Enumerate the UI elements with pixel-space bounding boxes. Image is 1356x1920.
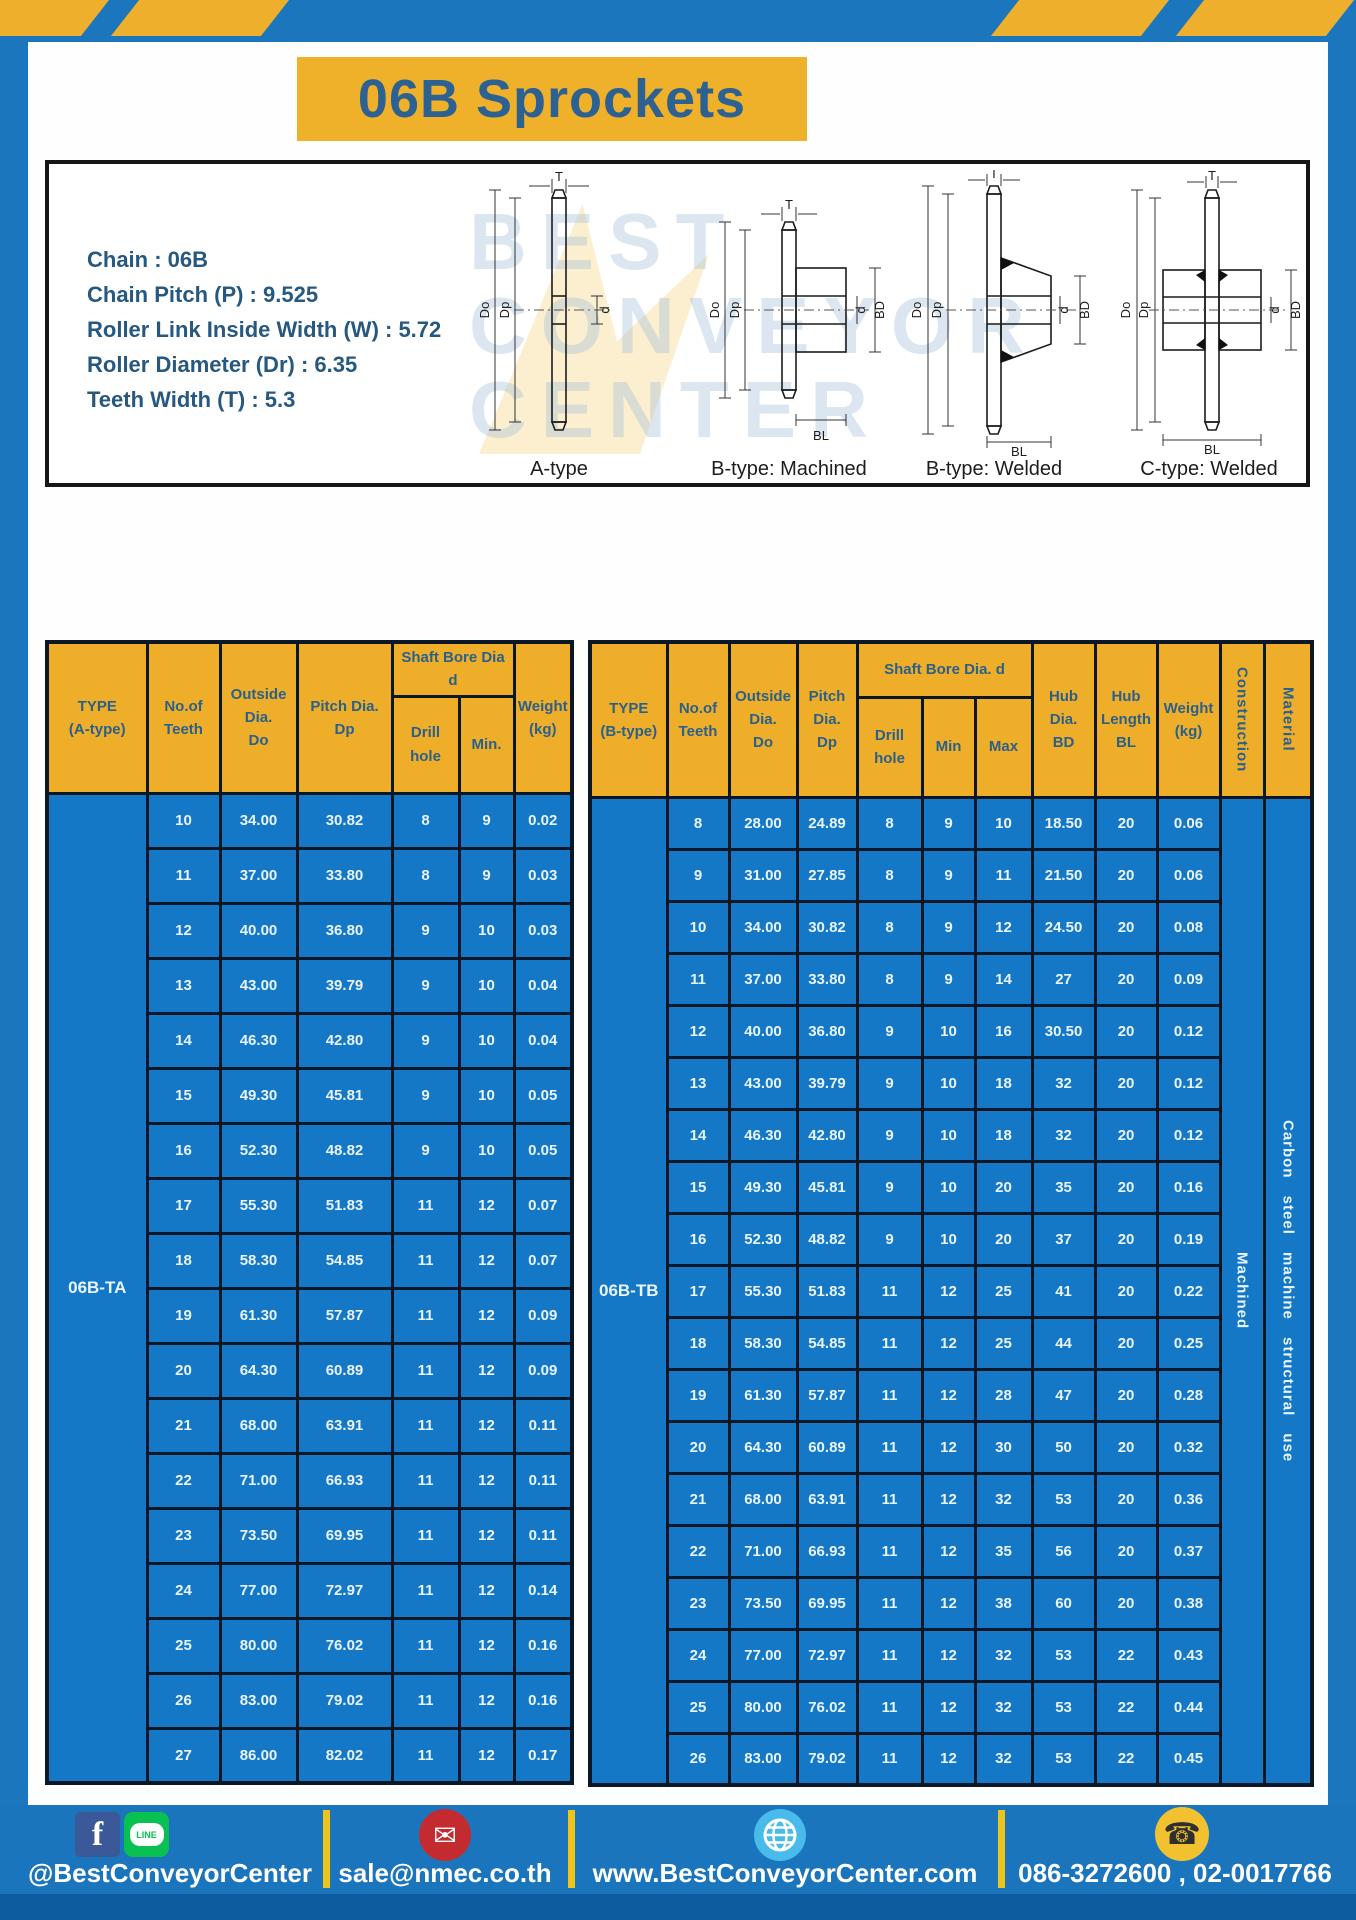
header-type: TYPE (B-type): [590, 642, 667, 797]
data-cell: 0.44: [1157, 1681, 1220, 1733]
svg-text:T: T: [785, 197, 793, 212]
data-cell: 20: [1095, 797, 1157, 849]
data-cell: 11: [392, 1618, 459, 1673]
data-cell: 13: [147, 958, 220, 1013]
data-cell: 0.38: [1157, 1577, 1220, 1629]
data-cell: 52.30: [729, 1213, 797, 1265]
header-min: Min.: [459, 696, 514, 793]
data-cell: 0.17: [514, 1728, 572, 1783]
data-cell: 68.00: [729, 1473, 797, 1525]
data-cell: 11: [857, 1733, 922, 1785]
data-cell: 48.82: [297, 1123, 392, 1178]
data-cell: 22: [147, 1453, 220, 1508]
data-cell: 28.00: [729, 797, 797, 849]
footer-website: www.BestConveyorCenter.com: [590, 1858, 980, 1889]
data-cell: 20: [667, 1421, 729, 1473]
data-cell: 11: [392, 1398, 459, 1453]
spec-line-chain: Chain : 06B: [87, 242, 441, 277]
data-cell: 17: [147, 1178, 220, 1233]
data-cell: 21: [147, 1398, 220, 1453]
data-cell: 11: [147, 848, 220, 903]
header-pitch: Pitch Dia. Dp: [797, 642, 857, 797]
data-cell: 73.50: [729, 1577, 797, 1629]
data-cell: 33.80: [297, 848, 392, 903]
figure-b-type-welded: T Do Dp d BD BL B-type: Welded: [889, 170, 1099, 482]
data-cell: 8: [857, 901, 922, 953]
data-cell: 71.00: [729, 1525, 797, 1577]
data-cell: 0.45: [1157, 1733, 1220, 1785]
data-cell: 20: [975, 1213, 1032, 1265]
data-cell: 39.79: [297, 958, 392, 1013]
svg-text:T: T: [555, 170, 563, 184]
data-cell: 49.30: [729, 1161, 797, 1213]
data-cell: 10: [975, 797, 1032, 849]
spec-line-teeth: Teeth Width (T) : 5.3: [87, 382, 441, 417]
data-cell: 0.25: [1157, 1317, 1220, 1369]
data-cell: 10: [459, 1068, 514, 1123]
data-cell: 53: [1032, 1629, 1095, 1681]
data-cell: 11: [857, 1317, 922, 1369]
footer-email: sale@nmec.co.th: [330, 1858, 560, 1889]
data-cell: 23: [667, 1577, 729, 1629]
data-cell: 47: [1032, 1369, 1095, 1421]
data-cell: 23: [147, 1508, 220, 1563]
figure-label-a-type: A-type: [530, 458, 588, 481]
data-cell: 0.07: [514, 1178, 572, 1233]
data-cell: 53: [1032, 1733, 1095, 1785]
data-cell: 76.02: [297, 1618, 392, 1673]
data-cell: 11: [857, 1629, 922, 1681]
sprocket-drawing-b-machined: T Do Dp d BD BL: [689, 170, 889, 458]
data-cell: 32: [1032, 1109, 1095, 1161]
data-cell: 0.12: [1157, 1005, 1220, 1057]
spec-table-a-type: TYPE (A-type) No.of Teeth Outside Dia. D…: [45, 640, 574, 1785]
footer-phone-numbers: 086-3272600 , 02-0017766: [1000, 1858, 1350, 1889]
svg-text:Do: Do: [1118, 302, 1133, 319]
data-cell: 13: [667, 1057, 729, 1109]
data-cell: 14: [667, 1109, 729, 1161]
data-cell: 71.00: [220, 1453, 297, 1508]
data-cell: 8: [857, 797, 922, 849]
data-cell: 10: [459, 903, 514, 958]
table-b-header: TYPE (B-type) No.of Teeth Outside Dia. D…: [590, 642, 1312, 797]
data-cell: 10: [459, 1013, 514, 1068]
data-cell: 25: [975, 1265, 1032, 1317]
data-cell: 61.30: [220, 1288, 297, 1343]
data-cell: 18: [147, 1233, 220, 1288]
diagram-panel: BEST CONVEYOR CENTER Chain : 06B Chain P…: [45, 160, 1310, 487]
data-cell: 9: [857, 1109, 922, 1161]
table-row: 1240.0036.809101630.50200.12: [590, 1005, 1312, 1057]
data-cell: 25: [147, 1618, 220, 1673]
data-cell: 51.83: [297, 1178, 392, 1233]
data-cell: 52.30: [220, 1123, 297, 1178]
data-cell: 61.30: [729, 1369, 797, 1421]
header-pitch: Pitch Dia. Dp: [297, 642, 392, 793]
svg-text:Do: Do: [909, 302, 924, 319]
data-cell: 24: [147, 1563, 220, 1618]
data-cell: 55.30: [220, 1178, 297, 1233]
svg-text:T: T: [990, 170, 998, 181]
data-cell: 16: [147, 1123, 220, 1178]
line-app-icon: LINE: [124, 1812, 169, 1857]
data-cell: 24: [667, 1629, 729, 1681]
data-cell: 64.30: [220, 1343, 297, 1398]
email-icon: ✉: [419, 1809, 471, 1861]
data-cell: 12: [922, 1369, 975, 1421]
data-cell: 20: [1095, 1213, 1157, 1265]
data-cell: 11: [857, 1473, 922, 1525]
header-hub-dia: Hub Dia. BD: [1032, 642, 1095, 797]
svg-text:BL: BL: [1011, 444, 1027, 458]
data-cell: 44: [1032, 1317, 1095, 1369]
data-cell: 8: [667, 797, 729, 849]
data-cell: 11: [857, 1525, 922, 1577]
data-cell: 10: [922, 1005, 975, 1057]
table-row: 2064.3060.8911123050200.32: [590, 1421, 1312, 1473]
data-cell: 9: [922, 901, 975, 953]
data-cell: 55.30: [729, 1265, 797, 1317]
header-construction: Construction: [1220, 642, 1264, 797]
table-row: 06B-TB828.0024.89891018.50200.06Machined…: [590, 797, 1312, 849]
header-min: Min: [922, 697, 975, 797]
title-banner: 06B Sprockets: [297, 57, 807, 141]
data-cell: 12: [459, 1178, 514, 1233]
footer-separator: [323, 1810, 330, 1888]
table-b-body: 06B-TB828.0024.89891018.50200.06Machined…: [590, 797, 1312, 1785]
svg-text:BD: BD: [1288, 301, 1303, 319]
data-cell: 34.00: [729, 901, 797, 953]
data-cell: 12: [922, 1473, 975, 1525]
data-cell: 0.09: [514, 1288, 572, 1343]
data-cell: 27: [147, 1728, 220, 1783]
data-cell: 0.16: [514, 1673, 572, 1728]
data-cell: 37: [1032, 1213, 1095, 1265]
svg-text:d: d: [1267, 306, 1282, 313]
data-cell: 9: [922, 953, 975, 1005]
data-cell: 12: [975, 901, 1032, 953]
data-cell: 0.08: [1157, 901, 1220, 953]
header-type: TYPE (A-type): [47, 642, 147, 793]
data-cell: 32: [975, 1733, 1032, 1785]
footer-social-handle: @BestConveyorCenter: [20, 1858, 320, 1889]
header-material: Material: [1264, 642, 1312, 797]
data-cell: 9: [857, 1213, 922, 1265]
data-cell: 41: [1032, 1265, 1095, 1317]
data-cell: 30.50: [1032, 1005, 1095, 1057]
data-cell: 77.00: [220, 1563, 297, 1618]
data-cell: 25: [975, 1317, 1032, 1369]
data-cell: 12: [922, 1265, 975, 1317]
footer-separator: [568, 1810, 575, 1888]
table-row: 1137.0033.80891427200.09: [590, 953, 1312, 1005]
data-cell: 36.80: [297, 903, 392, 958]
data-cell: 18: [975, 1057, 1032, 1109]
header-weight: Weight (kg): [514, 642, 572, 793]
sprocket-drawing-a-type: T Do Dp d: [459, 170, 659, 458]
data-cell: 12: [459, 1233, 514, 1288]
data-cell: 46.30: [729, 1109, 797, 1161]
spec-line-roller: Roller Diameter (Dr) : 6.35: [87, 347, 441, 382]
data-cell: 12: [459, 1508, 514, 1563]
data-cell: 39.79: [797, 1057, 857, 1109]
construction-value: Machined: [1220, 797, 1264, 1785]
data-cell: 8: [857, 953, 922, 1005]
material-value: Carbon steel machine structural use: [1264, 797, 1312, 1785]
data-cell: 20: [1095, 849, 1157, 901]
data-cell: 12: [922, 1681, 975, 1733]
decorative-stripe: [0, 0, 109, 36]
facebook-icon: f: [75, 1812, 120, 1857]
data-cell: 37.00: [220, 848, 297, 903]
table-row: 1446.3042.809101832200.12: [590, 1109, 1312, 1161]
data-cell: 82.02: [297, 1728, 392, 1783]
svg-text:Do: Do: [477, 302, 492, 319]
data-cell: 0.12: [1157, 1109, 1220, 1161]
data-cell: 20: [1095, 1577, 1157, 1629]
header-teeth: No.of Teeth: [667, 642, 729, 797]
data-cell: 38: [975, 1577, 1032, 1629]
table-row: 2271.0066.9311123556200.37: [590, 1525, 1312, 1577]
data-cell: 24.50: [1032, 901, 1095, 953]
figure-c-type-welded: T Do Dp d BD BL C-typ: [1104, 170, 1314, 482]
data-cell: 8: [392, 848, 459, 903]
sprocket-drawing-b-welded: T Do Dp d BD BL: [894, 170, 1094, 458]
data-cell: 54.85: [797, 1317, 857, 1369]
data-cell: 9: [392, 1013, 459, 1068]
data-cell: 24.89: [797, 797, 857, 849]
data-cell: 11: [857, 1369, 922, 1421]
data-cell: 20: [1095, 1525, 1157, 1577]
data-cell: 32: [975, 1629, 1032, 1681]
data-cell: 12: [147, 903, 220, 958]
table-row: 1961.3057.8711122847200.28: [590, 1369, 1312, 1421]
data-cell: 0.22: [1157, 1265, 1220, 1317]
data-cell: 57.87: [797, 1369, 857, 1421]
data-cell: 0.06: [1157, 849, 1220, 901]
data-cell: 12: [922, 1317, 975, 1369]
data-cell: 9: [857, 1057, 922, 1109]
data-cell: 0.11: [514, 1508, 572, 1563]
data-cell: 0.32: [1157, 1421, 1220, 1473]
header-outside: Outside Dia. Do: [220, 642, 297, 793]
data-cell: 34.00: [220, 793, 297, 848]
table-row: 1343.0039.799101832200.12: [590, 1057, 1312, 1109]
data-cell: 27.85: [797, 849, 857, 901]
data-cell: 60.89: [297, 1343, 392, 1398]
data-cell: 86.00: [220, 1728, 297, 1783]
decorative-stripe: [991, 0, 1169, 36]
svg-text:Dp: Dp: [1136, 302, 1151, 319]
data-cell: 11: [392, 1673, 459, 1728]
table-row: 2683.0079.0211123253220.45: [590, 1733, 1312, 1785]
data-cell: 12: [459, 1728, 514, 1783]
svg-text:BL: BL: [1204, 442, 1220, 457]
data-cell: 12: [922, 1421, 975, 1473]
header-hub-length: Hub Length BL: [1095, 642, 1157, 797]
data-cell: 11: [392, 1728, 459, 1783]
data-cell: 12: [922, 1733, 975, 1785]
facebook-letter: f: [92, 1816, 103, 1854]
figure-label-b-welded: B-type: Welded: [926, 458, 1062, 481]
type-label: 06B-TA: [47, 793, 147, 1783]
data-cell: 0.03: [514, 903, 572, 958]
data-cell: 0.04: [514, 958, 572, 1013]
data-cell: 10: [147, 793, 220, 848]
data-cell: 20: [1095, 1421, 1157, 1473]
data-cell: 18: [667, 1317, 729, 1369]
line-badge: LINE: [130, 1823, 164, 1846]
data-cell: 19: [147, 1288, 220, 1343]
data-cell: 72.97: [297, 1563, 392, 1618]
data-cell: 31.00: [729, 849, 797, 901]
spec-sheet-page: 06B Sprockets BEST CONVEYOR CENTER Chain…: [0, 0, 1356, 1920]
data-cell: 33.80: [797, 953, 857, 1005]
data-cell: 0.06: [1157, 797, 1220, 849]
data-cell: 30: [975, 1421, 1032, 1473]
header-outside: Outside Dia. Do: [729, 642, 797, 797]
data-cell: 10: [459, 958, 514, 1013]
figure-a-type: T Do Dp d A-type: [454, 170, 664, 482]
data-cell: 11: [857, 1577, 922, 1629]
data-cell: 0.05: [514, 1123, 572, 1178]
data-cell: 9: [667, 849, 729, 901]
data-cell: 0.16: [1157, 1161, 1220, 1213]
svg-text:d: d: [853, 306, 868, 313]
decorative-stripe: [1176, 0, 1354, 36]
data-cell: 51.83: [797, 1265, 857, 1317]
data-cell: 15: [667, 1161, 729, 1213]
data-cell: 20: [1095, 901, 1157, 953]
data-cell: 20: [1095, 1369, 1157, 1421]
data-cell: 12: [922, 1577, 975, 1629]
header-teeth: No.of Teeth: [147, 642, 220, 793]
data-cell: 60: [1032, 1577, 1095, 1629]
data-cell: 12: [922, 1629, 975, 1681]
table-a-header: TYPE (A-type) No.of Teeth Outside Dia. D…: [47, 642, 572, 793]
data-cell: 0.07: [514, 1233, 572, 1288]
svg-text:Dp: Dp: [497, 302, 512, 319]
data-cell: 10: [922, 1161, 975, 1213]
footer-bottom-strip: [0, 1894, 1356, 1920]
data-cell: 9: [459, 848, 514, 903]
data-cell: 43.00: [729, 1057, 797, 1109]
data-cell: 10: [922, 1057, 975, 1109]
data-cell: 18: [975, 1109, 1032, 1161]
data-cell: 20: [147, 1343, 220, 1398]
data-cell: 35: [975, 1525, 1032, 1577]
table-a-body: 06B-TA1034.0030.82890.021137.0033.80890.…: [47, 793, 572, 1783]
data-cell: 0.16: [514, 1618, 572, 1673]
table-row: 2373.5069.9511123860200.38: [590, 1577, 1312, 1629]
data-cell: 15: [147, 1068, 220, 1123]
data-cell: 0.04: [514, 1013, 572, 1068]
data-cell: 36.80: [797, 1005, 857, 1057]
table-row: 931.0027.85891121.50200.06: [590, 849, 1312, 901]
data-cell: 20: [1095, 1109, 1157, 1161]
data-cell: 11: [392, 1508, 459, 1563]
data-cell: 66.93: [297, 1453, 392, 1508]
data-cell: 12: [459, 1563, 514, 1618]
data-cell: 8: [857, 849, 922, 901]
figure-label-b-machined: B-type: Machined: [711, 458, 867, 481]
data-cell: 0.19: [1157, 1213, 1220, 1265]
data-cell: 11: [975, 849, 1032, 901]
data-cell: 20: [1095, 1161, 1157, 1213]
table-row: 1652.3048.829102037200.19: [590, 1213, 1312, 1265]
data-cell: 77.00: [729, 1629, 797, 1681]
data-cell: 64.30: [729, 1421, 797, 1473]
data-cell: 9: [922, 849, 975, 901]
table-row: 2477.0072.9711123253220.43: [590, 1629, 1312, 1681]
data-cell: 35: [1032, 1161, 1095, 1213]
data-cell: 10: [459, 1123, 514, 1178]
data-cell: 32: [975, 1473, 1032, 1525]
data-cell: 45.81: [297, 1068, 392, 1123]
data-cell: 0.28: [1157, 1369, 1220, 1421]
data-cell: 73.50: [220, 1508, 297, 1563]
data-cell: 0.09: [1157, 953, 1220, 1005]
header-shaft-bore: Shaft Bore Dia. d: [857, 642, 1032, 697]
data-cell: 30.82: [297, 793, 392, 848]
data-cell: 11: [392, 1563, 459, 1618]
data-cell: 11: [667, 953, 729, 1005]
svg-text:BD: BD: [1077, 301, 1092, 319]
data-cell: 9: [459, 793, 514, 848]
data-cell: 76.02: [797, 1681, 857, 1733]
data-cell: 45.81: [797, 1161, 857, 1213]
data-cell: 0.09: [514, 1343, 572, 1398]
data-cell: 83.00: [729, 1733, 797, 1785]
data-cell: 12: [922, 1525, 975, 1577]
data-cell: 58.30: [220, 1233, 297, 1288]
data-cell: 20: [1095, 1057, 1157, 1109]
data-cell: 11: [392, 1343, 459, 1398]
data-cell: 66.93: [797, 1525, 857, 1577]
data-cell: 37.00: [729, 953, 797, 1005]
data-cell: 9: [392, 958, 459, 1013]
data-cell: 21.50: [1032, 849, 1095, 901]
data-cell: 56: [1032, 1525, 1095, 1577]
table-row: 2168.0063.9111123253200.36: [590, 1473, 1312, 1525]
table-row: 1755.3051.8311122541200.22: [590, 1265, 1312, 1317]
data-cell: 12: [459, 1288, 514, 1343]
data-cell: 12: [459, 1343, 514, 1398]
data-cell: 20: [1095, 1005, 1157, 1057]
data-cell: 10: [922, 1213, 975, 1265]
data-cell: 9: [857, 1005, 922, 1057]
data-cell: 40.00: [729, 1005, 797, 1057]
data-cell: 9: [392, 1068, 459, 1123]
data-cell: 79.02: [797, 1733, 857, 1785]
chain-specs: Chain : 06B Chain Pitch (P) : 9.525 Roll…: [87, 242, 441, 417]
svg-text:d: d: [597, 306, 612, 313]
data-cell: 50: [1032, 1421, 1095, 1473]
data-cell: 20: [1095, 1265, 1157, 1317]
table-row: 06B-TA1034.0030.82890.02: [47, 793, 572, 848]
table-row: 1549.3045.819102035200.16: [590, 1161, 1312, 1213]
data-cell: 0.02: [514, 793, 572, 848]
data-cell: 14: [975, 953, 1032, 1005]
data-cell: 53: [1032, 1473, 1095, 1525]
data-cell: 69.95: [297, 1508, 392, 1563]
data-cell: 16: [975, 1005, 1032, 1057]
data-cell: 20: [1095, 1473, 1157, 1525]
header-weight: Weight (kg): [1157, 642, 1220, 797]
data-cell: 0.37: [1157, 1525, 1220, 1577]
data-cell: 11: [857, 1265, 922, 1317]
table-row: 1858.3054.8511122544200.25: [590, 1317, 1312, 1369]
